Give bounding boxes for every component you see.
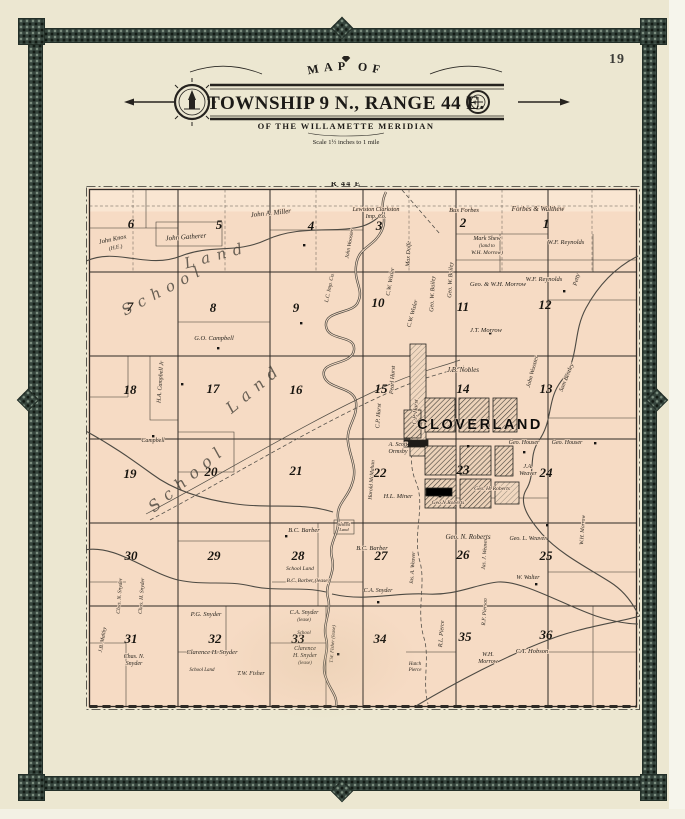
border-left (28, 28, 43, 791)
section-number: 16 (290, 382, 304, 397)
owner-label: Weaver (519, 471, 537, 477)
owner-label: Lewiston Clarkston (352, 207, 400, 213)
owner-label: W.F. Reynolds (548, 239, 585, 246)
owner-label: H.L. Miner (382, 493, 413, 500)
section-number: 17 (207, 381, 221, 396)
page-edge-bottom (0, 809, 685, 819)
section-number: 29 (207, 548, 222, 563)
main-title: TOWNSHIP 9 N., RANGE 44 E. (207, 93, 485, 114)
title-ornament: MAP OF (122, 56, 572, 151)
owner-label: Bus Forbes (449, 207, 479, 214)
owner-label: School Land (286, 566, 314, 572)
section-number: 9 (293, 300, 300, 315)
owner-label: P.G. Snyder (190, 611, 222, 618)
section-number: 35 (458, 629, 473, 644)
owner-label: G.O. Campbell (194, 335, 234, 342)
svg-text:MAP OF: MAP OF (306, 59, 386, 77)
owner-label: School (297, 631, 311, 636)
owner-label: Geo.N.Roberts (432, 500, 465, 506)
border-corner-rosette (18, 18, 45, 45)
section-number: 6 (128, 216, 135, 231)
owner-label: (land to (479, 244, 495, 249)
owner-label: C.A. Snyder (290, 610, 319, 616)
owner-label: Mark Shew (472, 236, 500, 242)
plat-map-svg: R 44 E (86, 182, 644, 722)
section-number: 1 (543, 216, 550, 231)
section-number: 23 (456, 462, 471, 477)
border-corner-rosette (18, 774, 45, 801)
owner-label: Geo. H. Roberts (474, 486, 510, 492)
section-number: 21 (289, 463, 303, 478)
owner-label: J.B. Nobles (447, 366, 479, 374)
section-number: 31 (124, 631, 138, 646)
section-number: 30 (124, 548, 139, 563)
subtitle: OF THE WILLAMETTE MERIDIAN (258, 121, 435, 131)
section-number: 5 (216, 217, 223, 232)
owner-label: J.A. (523, 464, 532, 470)
owner-label: Geo. Houser (552, 440, 583, 446)
owner-label: W.F. Reynolds (526, 276, 563, 283)
owner-label: Ormsby (389, 449, 408, 455)
page-edge (669, 0, 685, 819)
range-label: R 44 E (331, 182, 361, 188)
owner-label: Geo. L. Weaver (509, 536, 547, 542)
arc-title: MAP OF (306, 59, 386, 77)
owner-label: Geo. & W.H. Morrow (470, 281, 527, 288)
page-number: 19 (609, 52, 625, 68)
owner-label: B.C. Barber (288, 527, 320, 534)
owner-label: Forbes & Walthew (511, 205, 565, 213)
owner-label: C.T. Hobson (516, 648, 549, 655)
plat-map: R 44 E (86, 182, 644, 722)
owner-label: Hatch (408, 662, 422, 667)
section-number: 12 (539, 297, 553, 312)
section-number: 26 (456, 547, 471, 562)
section-number: 28 (291, 548, 306, 563)
owner-label: J.T. Morrow (470, 327, 503, 334)
owner-label: Imp. Co. (365, 214, 387, 220)
owner-label: T.W. Fisher (237, 671, 265, 677)
owner-label: B.C. Barber (356, 545, 388, 552)
section-number: 11 (457, 299, 469, 314)
scale-note: Scale 1½ inches to 1 mile (313, 139, 380, 146)
owner-label: (lease) (297, 618, 311, 623)
owner-label: Geo. Houser (509, 440, 540, 446)
section-number: 36 (539, 627, 554, 642)
owner-label: Pierce (408, 668, 423, 673)
title-cartouche: MAP OF (122, 56, 572, 156)
section-number: 18 (124, 382, 138, 397)
owner-label: A. Scott (388, 442, 408, 448)
owner-label: Morrow (477, 659, 497, 665)
owner-label: C.A. Snyder (364, 588, 393, 594)
section-number: 32 (208, 631, 223, 646)
section-number: 25 (539, 548, 554, 563)
border-corner-rosette (640, 774, 667, 801)
section-number: 3 (375, 218, 383, 233)
section-number: 19 (124, 466, 138, 481)
atlas-page: { "page": { "number": "19" }, "colors": … (0, 0, 685, 819)
owner-label: Clarence (294, 646, 316, 652)
owner-label: Max Dolfe (404, 241, 412, 268)
section-number: 10 (372, 295, 386, 310)
section-number: 13 (540, 381, 554, 396)
owner-label: Land (338, 527, 349, 532)
owner-label: H. Snyder (292, 653, 318, 659)
section-number: 14 (457, 381, 471, 396)
owner-label: Campbell (141, 438, 165, 444)
owner-label: Snyder (126, 661, 143, 667)
border-corner-rosette (640, 18, 667, 45)
owner-label: School Land (189, 668, 215, 673)
section-number: 24 (539, 465, 554, 480)
owner-label: B.C. Barber (lease) (286, 577, 329, 584)
section-number: 2 (459, 215, 467, 230)
section-number: 15 (375, 381, 389, 396)
owner-label: (lease) (298, 661, 312, 666)
owner-label: W.H. Morrow) (471, 249, 503, 256)
section-number: 34 (373, 631, 388, 646)
town-label: CLOVERLAND (417, 417, 543, 433)
owner-label: Chas. N. (124, 654, 145, 660)
section-number: 4 (307, 218, 315, 233)
owner-label: Clarence H. Snyder (186, 649, 238, 656)
owner-label: W. Walter (516, 575, 540, 581)
owner-label: W.H. (482, 652, 494, 658)
section-number: 8 (210, 300, 217, 315)
